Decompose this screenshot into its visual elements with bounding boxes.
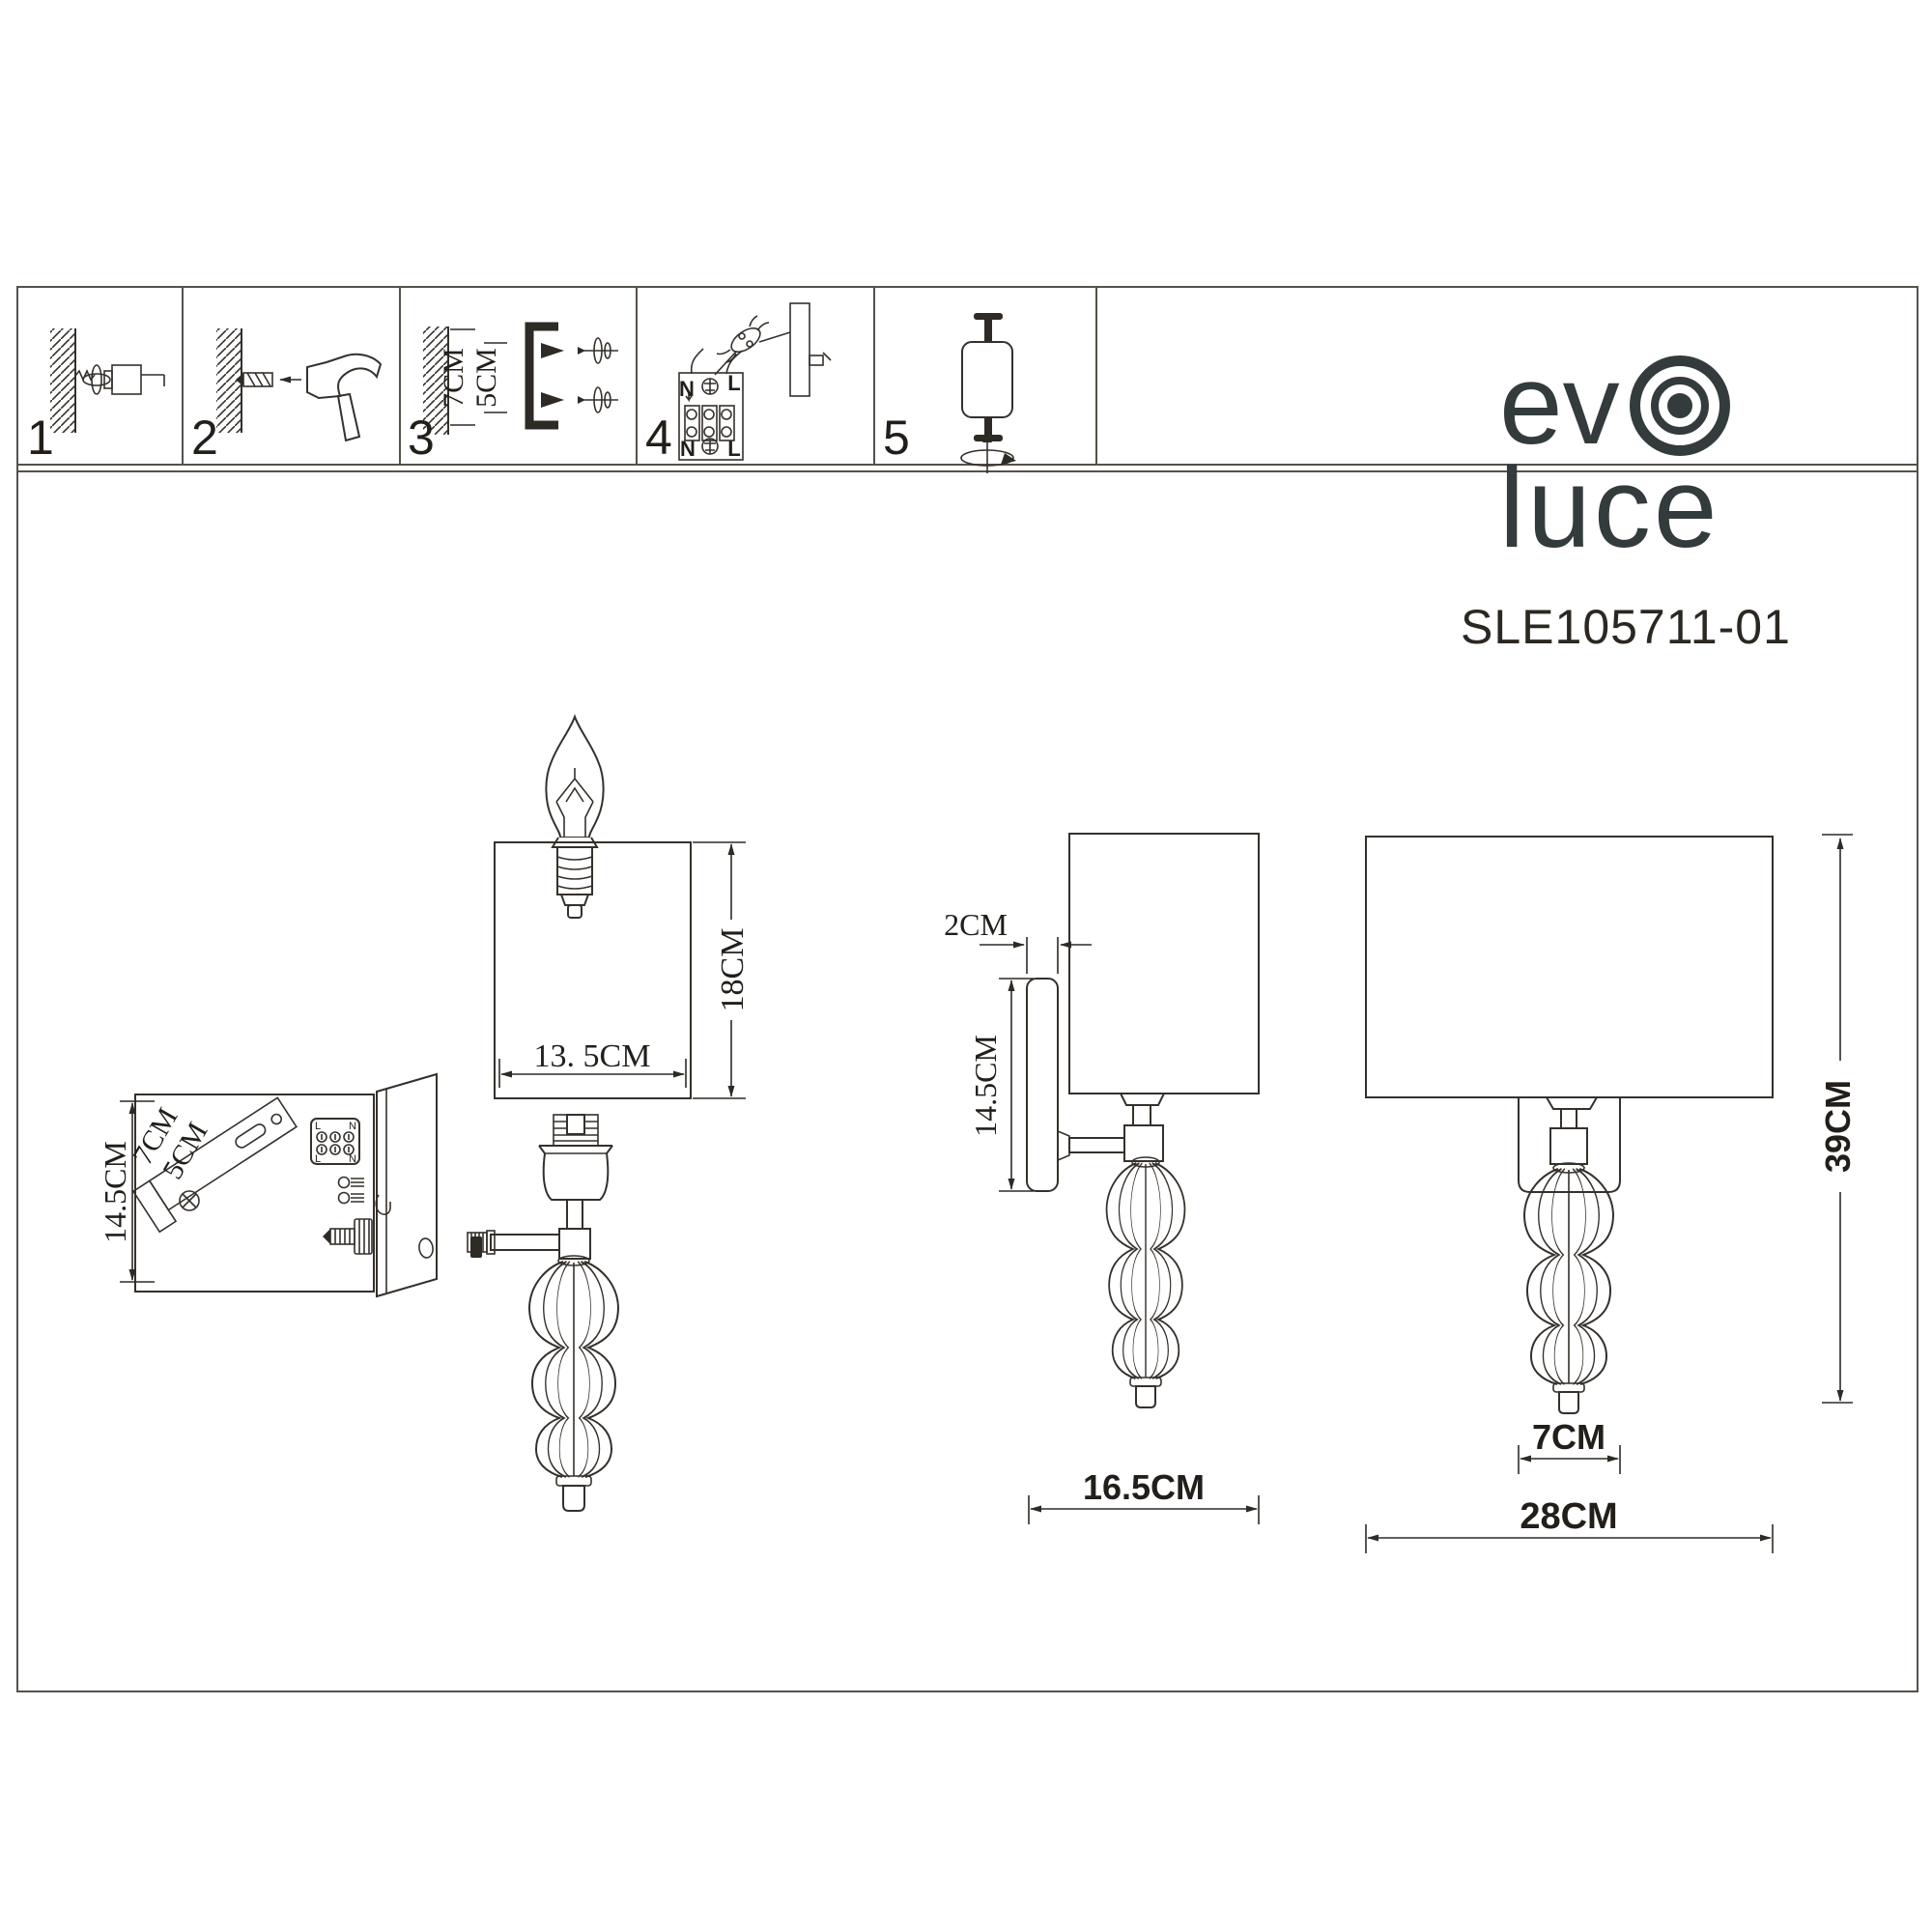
total-width-label: 28CM bbox=[1520, 1496, 1617, 1537]
bulb-icon bbox=[546, 717, 603, 918]
backplate-height-label: 14.5CM bbox=[98, 1141, 132, 1243]
dim-shade-width: 13. 5CM bbox=[499, 1038, 686, 1088]
decorative-glass-front bbox=[1524, 1163, 1613, 1413]
target-rings-icon bbox=[1630, 355, 1730, 456]
step-number-5: 5 bbox=[883, 411, 910, 465]
instruction-step-2: 2 bbox=[191, 328, 381, 465]
step3-dim-7cm: 7CM bbox=[438, 348, 469, 408]
dim-shade-height: 18CM bbox=[693, 842, 751, 1098]
block-label-br: N bbox=[349, 1153, 356, 1165]
dim-depth: 16.5CM bbox=[1029, 1467, 1259, 1524]
backplate-rear-view: 14.5CM 7CM 5CM L N L N bbox=[98, 1074, 482, 1296]
instruction-strip: 1 2 7CM bbox=[27, 287, 1096, 473]
logo-word-luce: luce bbox=[1499, 456, 1730, 561]
instruction-step-3: 7CM 5CM 3 bbox=[408, 327, 618, 465]
glass-width-label: 7CM bbox=[1532, 1417, 1605, 1457]
instruction-step-4: N L N L 4 bbox=[645, 303, 831, 465]
instruction-step-5: 5 bbox=[883, 313, 1016, 473]
step-number-2: 2 bbox=[191, 411, 218, 465]
rotate-arrow-icon bbox=[961, 431, 1016, 473]
side-arm-socket bbox=[1058, 1094, 1164, 1161]
instruction-step-1: 1 bbox=[27, 328, 164, 465]
logo-word-ev: ev bbox=[1499, 359, 1620, 450]
shade-front-large bbox=[1366, 837, 1773, 1097]
model-number: SLE105711-01 bbox=[1461, 599, 1791, 655]
depth-label: 16.5CM bbox=[1083, 1467, 1205, 1507]
backplate-side bbox=[1027, 979, 1058, 1191]
terminal-label-l-top: L bbox=[727, 371, 740, 395]
screw-icon bbox=[578, 338, 618, 363]
hook-icon bbox=[376, 1195, 390, 1214]
glass-rod-icon bbox=[962, 313, 1012, 441]
terminal-label-n-bottom: N bbox=[680, 437, 696, 461]
exploded-view: 13. 5CM 18CM bbox=[468, 717, 751, 1511]
shade-height-label: 18CM bbox=[715, 928, 751, 1012]
shade-side bbox=[1069, 834, 1259, 1094]
hammer-icon bbox=[307, 355, 381, 440]
terminal-label-n-top: N bbox=[679, 377, 695, 401]
technical-drawing: 1 2 7CM bbox=[0, 0, 1932, 1932]
block-label-tl: L bbox=[315, 1121, 321, 1132]
thumbscrew-icon bbox=[323, 1219, 372, 1254]
step-number-4: 4 bbox=[645, 411, 672, 465]
backplate-3d bbox=[377, 1074, 482, 1296]
side-view: 2CM 14.5CM 16.5CM bbox=[944, 834, 1259, 1524]
block-label-bl: L bbox=[315, 1153, 321, 1165]
step3-dim-5cm: 5CM bbox=[470, 348, 502, 408]
dim-glass-width: 7CM bbox=[1519, 1417, 1620, 1474]
wall-anchor-icon bbox=[236, 373, 301, 386]
backplate-side-icon bbox=[790, 303, 831, 396]
front-socket bbox=[1547, 1097, 1597, 1164]
small-screws-icon bbox=[339, 1178, 365, 1204]
dim-total-height: 39CM bbox=[1818, 835, 1858, 1403]
decorative-glass-side bbox=[1107, 1157, 1185, 1407]
block-label-tr: N bbox=[349, 1121, 356, 1132]
dim-plate-height: 14.5CM bbox=[968, 979, 1034, 1191]
mounting-bracket-icon bbox=[529, 327, 564, 425]
wall-hatch-icon bbox=[50, 328, 75, 433]
screw-fixture-icon bbox=[75, 365, 164, 394]
plate-height-label: 14.5CM bbox=[968, 1035, 1003, 1137]
front-view: 7CM 28CM 39CM bbox=[1366, 835, 1858, 1553]
instruction-sheet: 1 2 7CM bbox=[0, 0, 1932, 1932]
total-height-label: 39CM bbox=[1818, 1080, 1858, 1173]
terminal-label-l-bottom: L bbox=[727, 437, 740, 461]
step-number-3: 3 bbox=[408, 411, 435, 465]
decorative-glass bbox=[529, 1256, 618, 1511]
plate-thickness-label: 2CM bbox=[944, 907, 1008, 942]
dim-total-width: 28CM bbox=[1366, 1496, 1773, 1553]
socket-assembly bbox=[468, 1115, 612, 1259]
step-number-1: 1 bbox=[27, 411, 54, 465]
screw-icon bbox=[578, 387, 618, 412]
brand-logo: ev luce bbox=[1499, 359, 1730, 561]
shade-width-label: 13. 5CM bbox=[534, 1038, 651, 1074]
wire-connector-icon bbox=[715, 316, 790, 375]
